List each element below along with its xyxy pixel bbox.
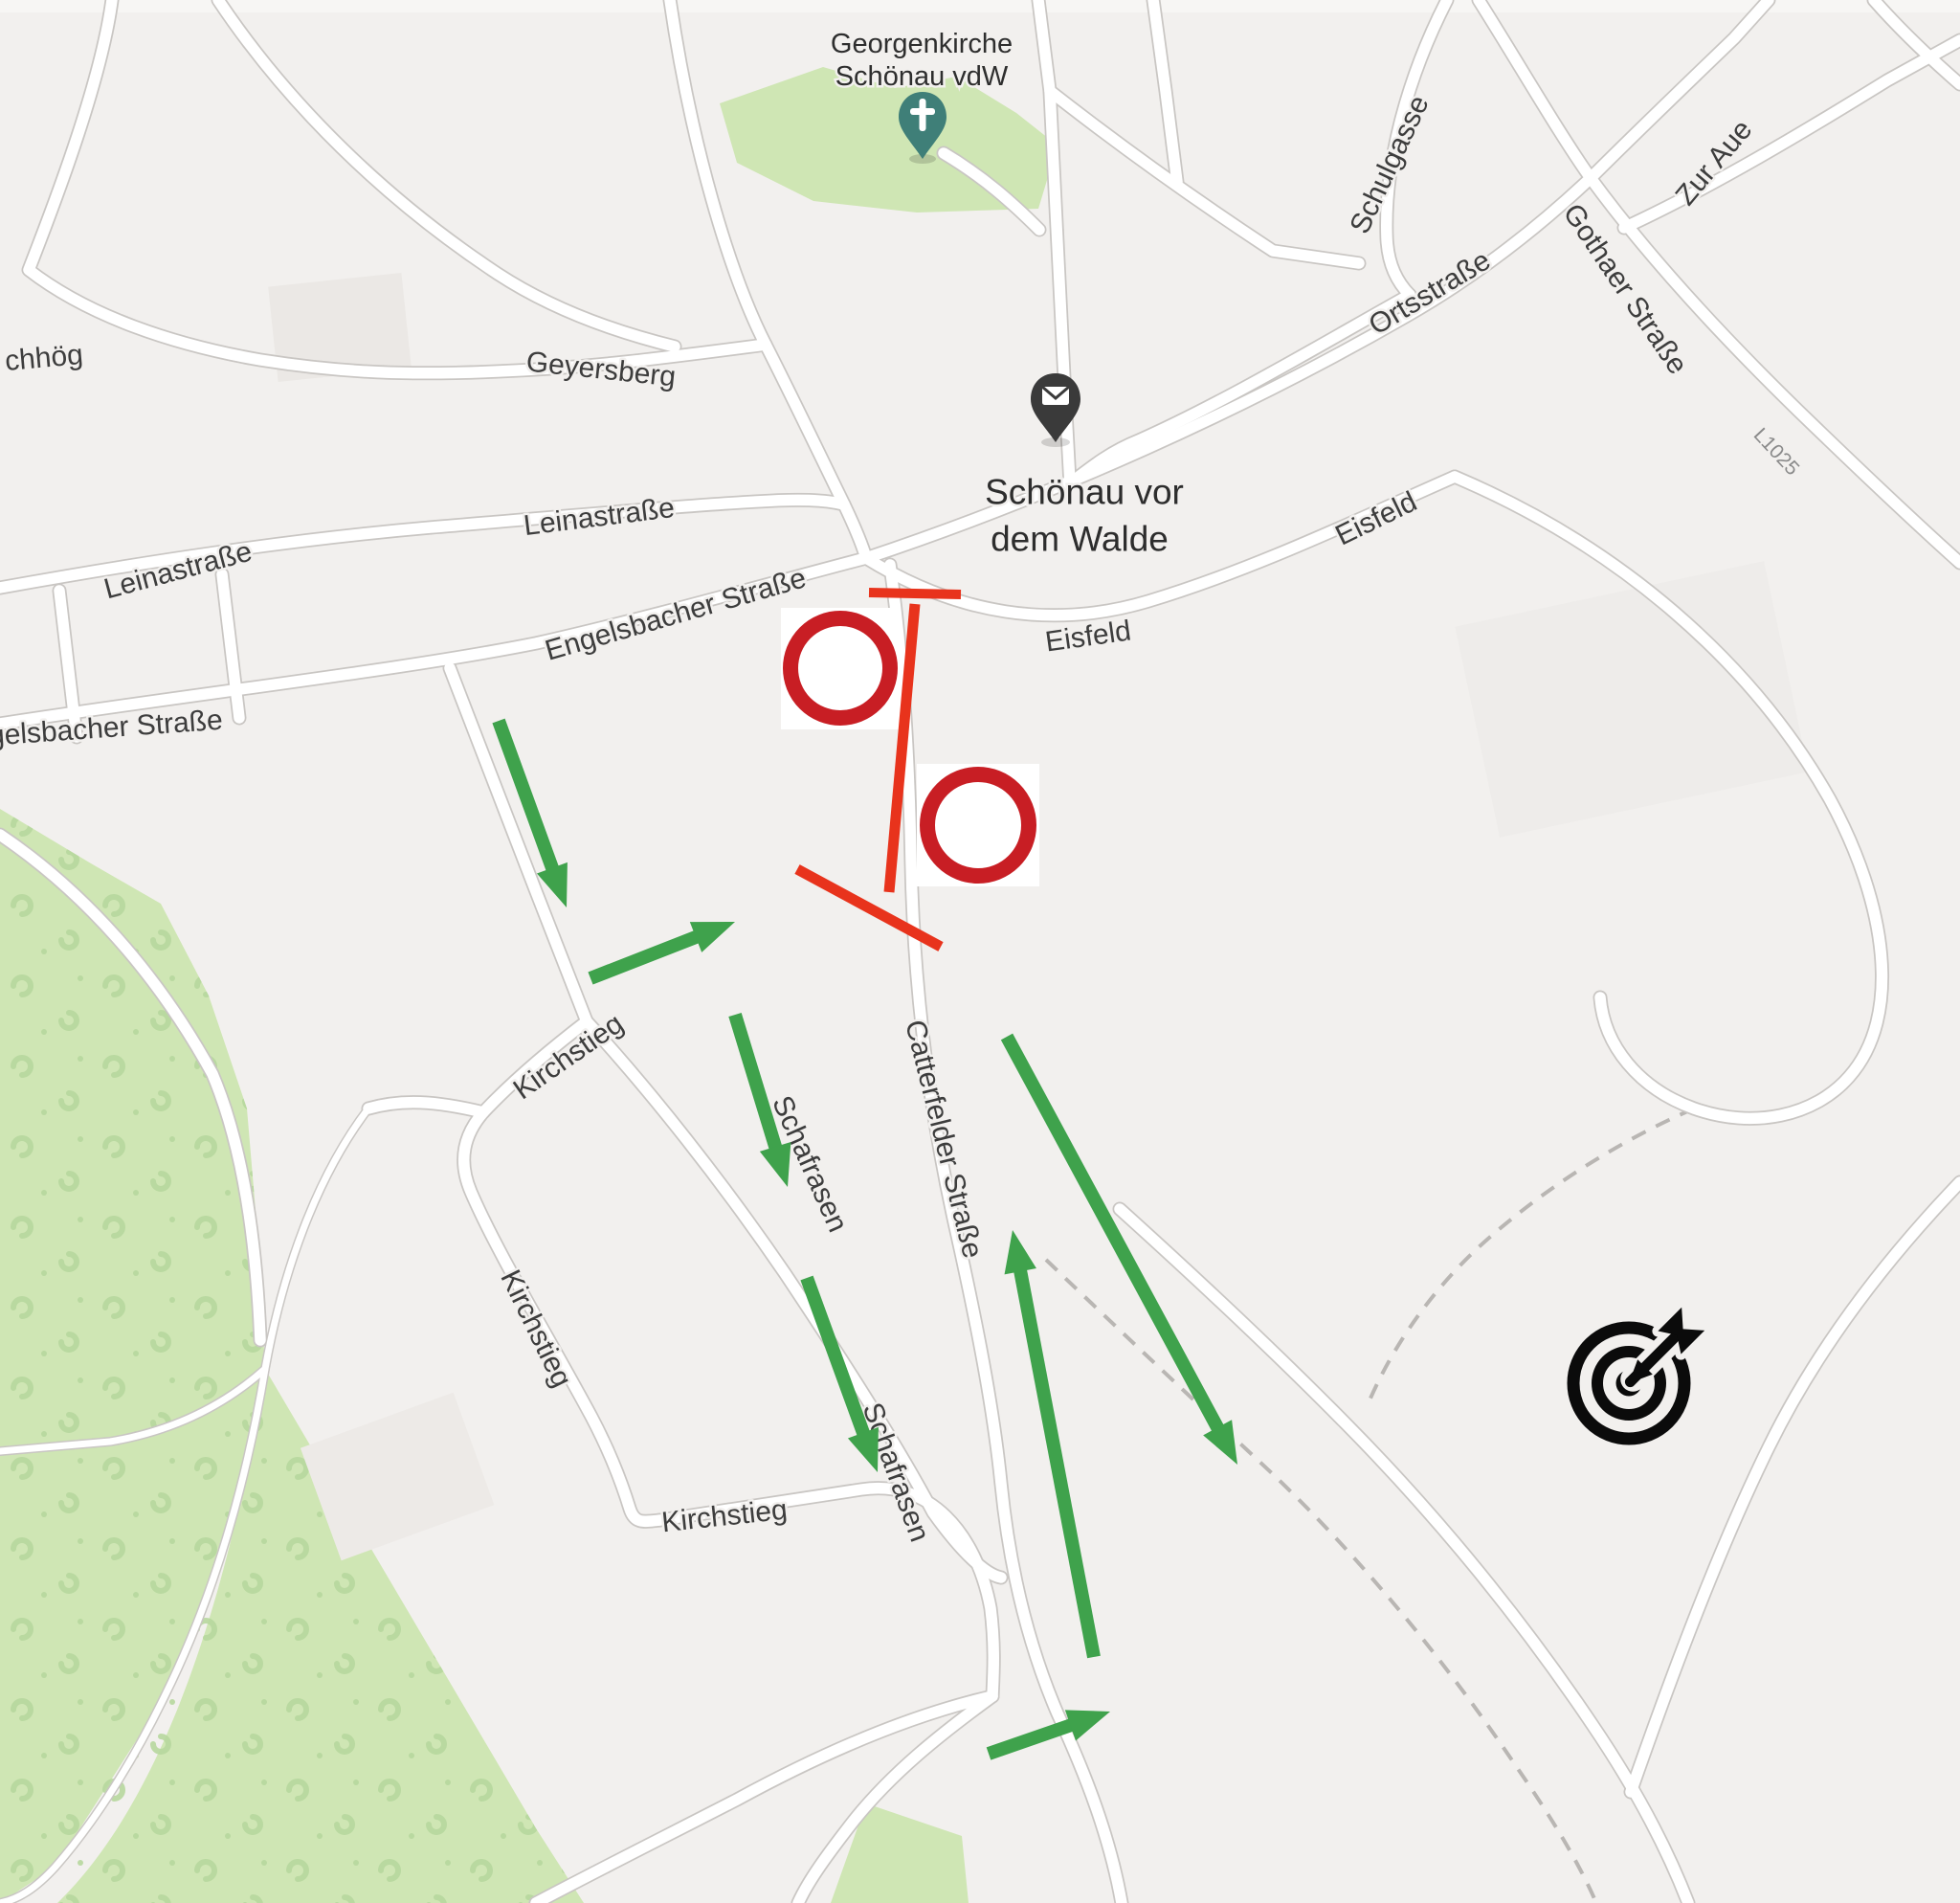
- map-canvas[interactable]: chhög Geyersberg Leinastraße Leinastraße…: [0, 0, 1960, 1903]
- town-label-line2: dem Walde: [991, 520, 1169, 559]
- top-light-band: [0, 0, 1960, 12]
- blocked-road-line: [869, 593, 961, 594]
- church-label-line2: Schönau vdW: [835, 61, 1009, 92]
- map-viewport[interactable]: chhög Geyersberg Leinastraße Leinastraße…: [0, 0, 1960, 1903]
- town-label-line1: Schönau vor: [985, 473, 1184, 512]
- church-label-line1: Georgenkirche: [831, 29, 1013, 59]
- sign-backplate: [917, 764, 1039, 886]
